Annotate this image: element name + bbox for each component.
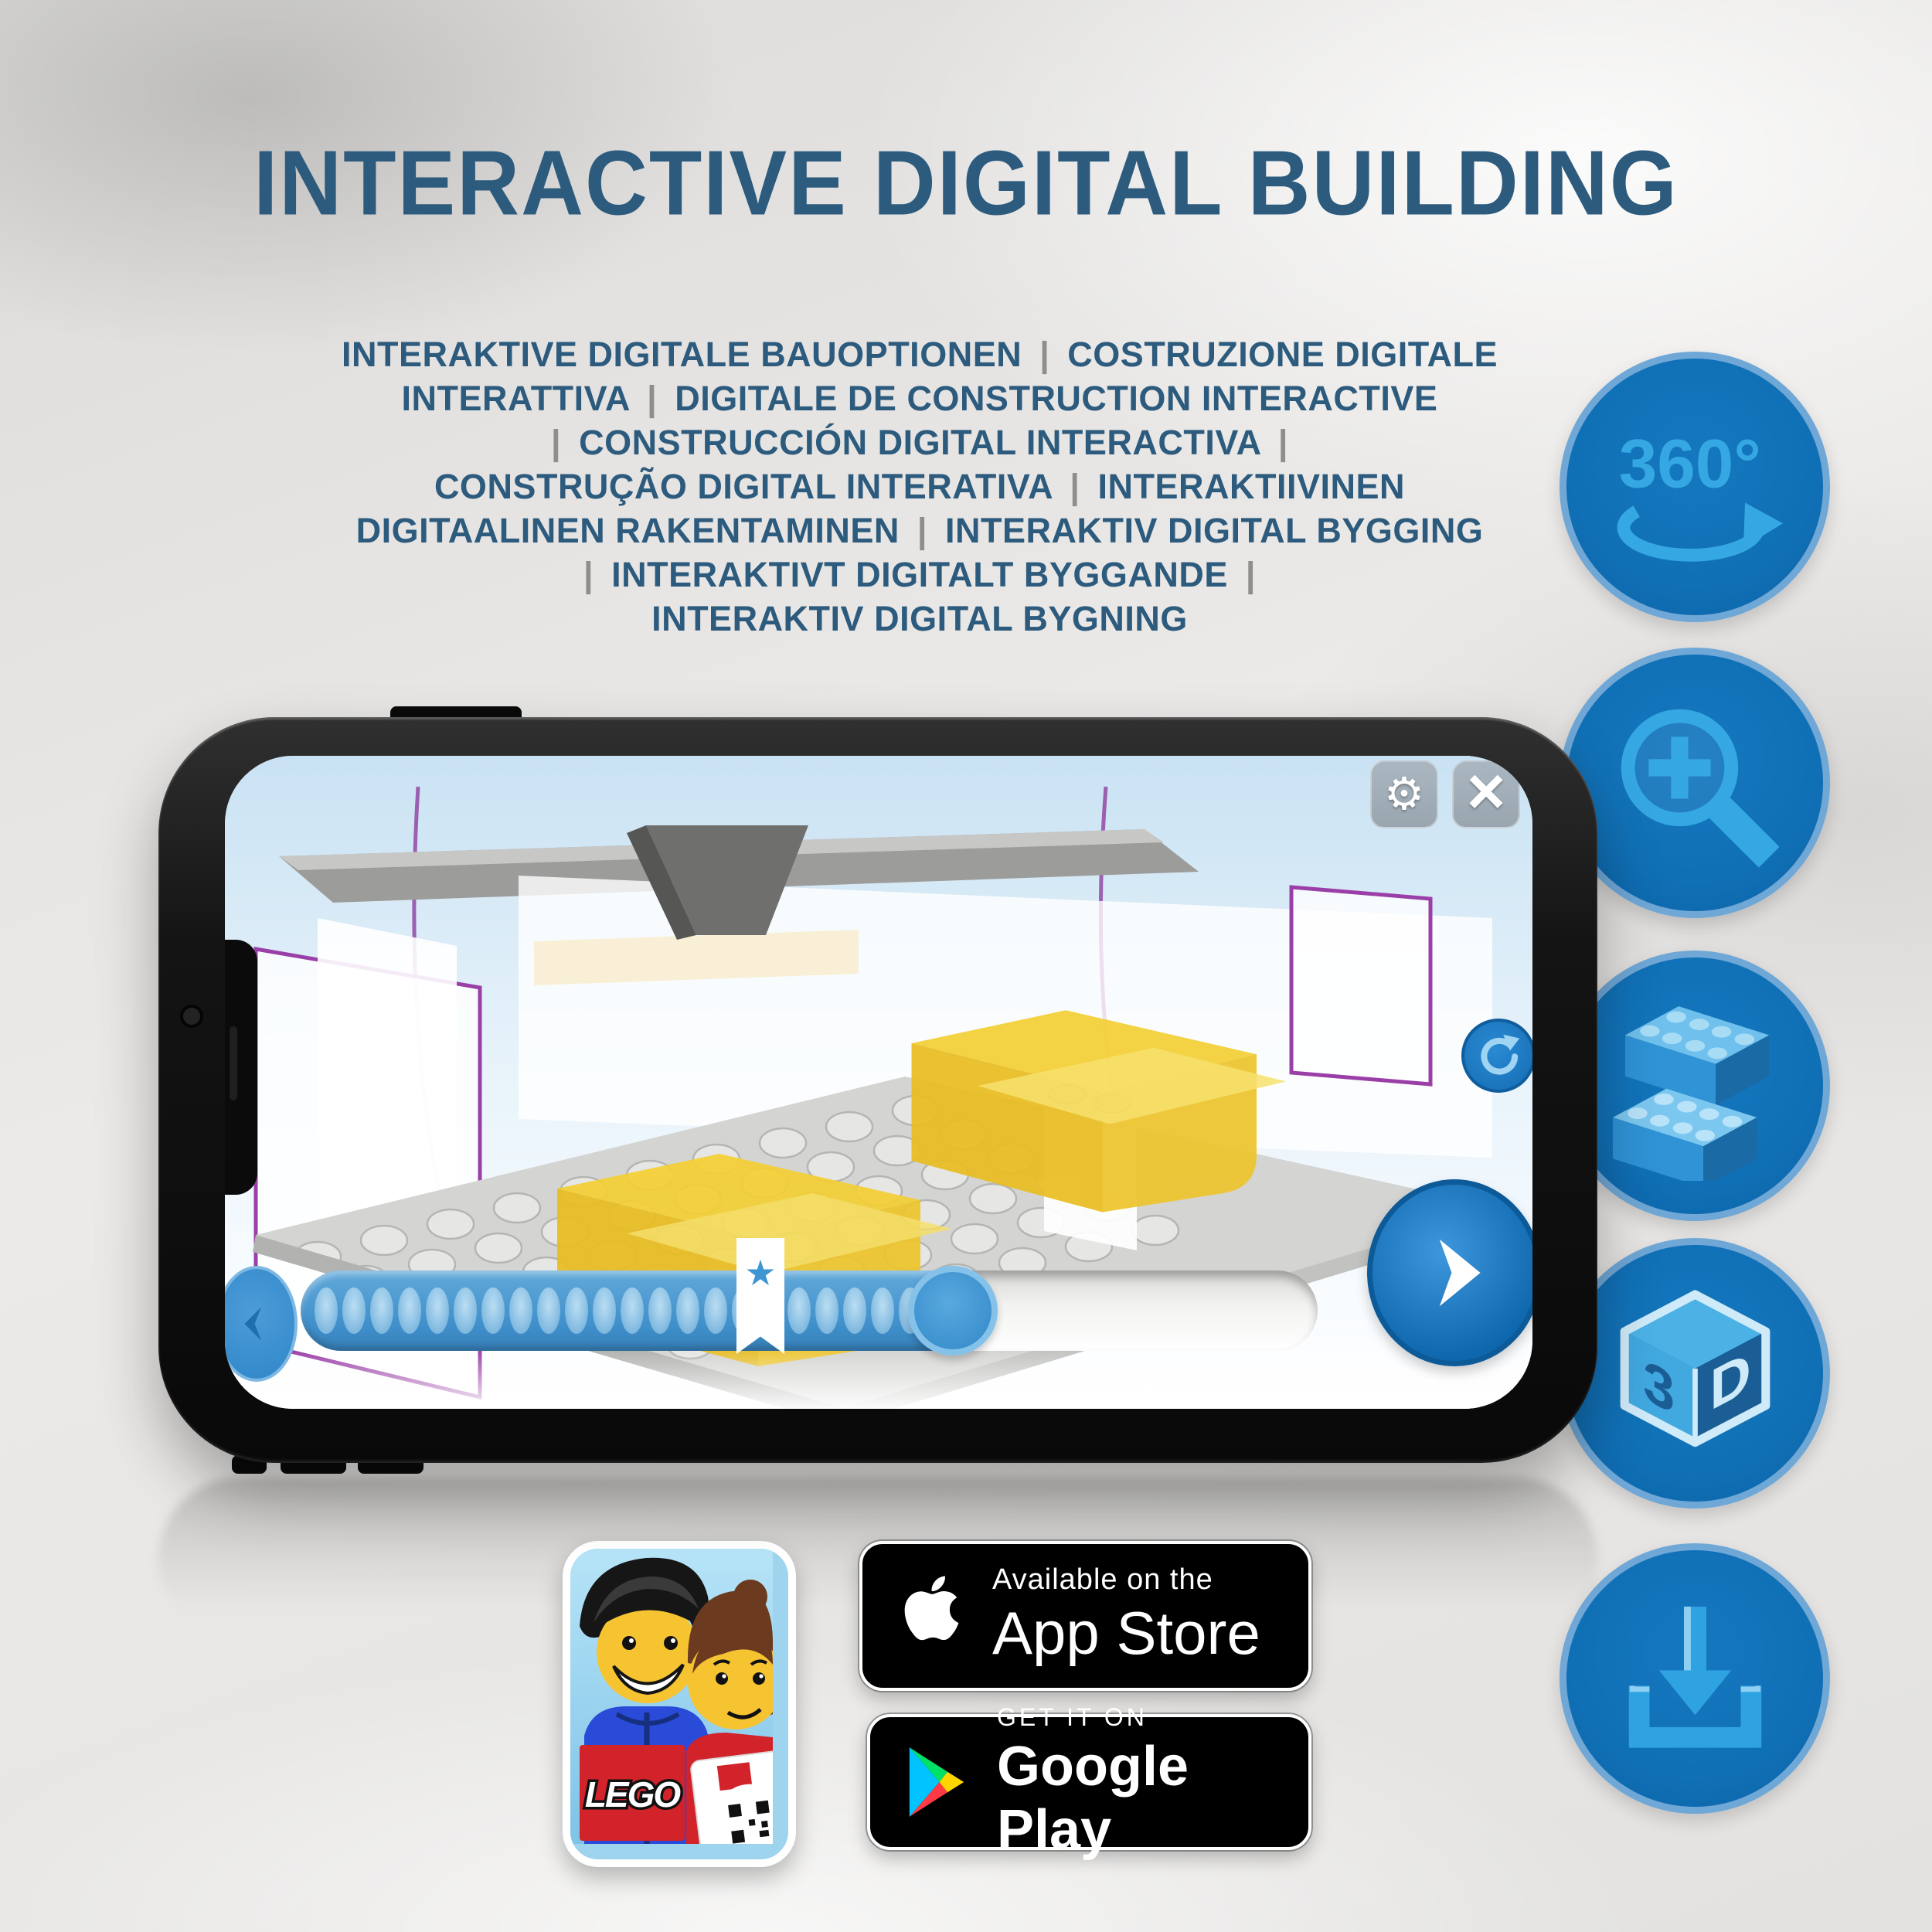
subtitle-line: INTERAKTIVE DIGITALE BAUOPTIONEN | COSTR… xyxy=(224,332,1615,376)
progress-dot xyxy=(593,1287,616,1334)
progress-dot xyxy=(704,1287,727,1334)
progress-dot xyxy=(481,1287,505,1334)
subtitle-line: DIGITAALINEN RAKENTAMINEN | INTERAKTIV D… xyxy=(224,509,1615,553)
settings-button[interactable]: ⚙ xyxy=(1370,760,1438,828)
google-play-tagline: GET IT ON xyxy=(997,1703,1308,1732)
progress-dot xyxy=(342,1287,366,1334)
progress-dot xyxy=(871,1287,894,1334)
progress-dot xyxy=(370,1287,393,1334)
next-step-button[interactable] xyxy=(1367,1179,1532,1366)
front-camera xyxy=(180,1005,203,1028)
subtitle-block: INTERAKTIVE DIGITALE BAUOPTIONEN | COSTR… xyxy=(224,332,1615,641)
phone-mockup: ⚙ × xyxy=(158,717,1597,1463)
feature-download xyxy=(1560,1543,1830,1814)
feature-3d: 3 D xyxy=(1560,1238,1830,1509)
google-play-icon xyxy=(903,1743,971,1821)
baseplate-stud xyxy=(760,1128,806,1158)
progress-dot xyxy=(315,1287,338,1334)
subtitle-line: INTERAKTIV DIGITAL BYGNING xyxy=(224,597,1615,641)
google-play-badge[interactable]: GET IT ON Google Play xyxy=(867,1714,1311,1850)
progress-dot xyxy=(621,1287,644,1334)
progress-dot xyxy=(426,1287,449,1334)
poster-canvas: INTERACTIVE DIGITAL BUILDING INTERAKTIVE… xyxy=(0,0,1932,1932)
progress-dot xyxy=(648,1287,672,1334)
gear-icon: ⚙ xyxy=(1384,772,1424,817)
progress-dot xyxy=(509,1287,532,1334)
rotate-view-button[interactable] xyxy=(1461,1019,1532,1093)
phone-notch xyxy=(225,940,257,1195)
progress-dot xyxy=(843,1287,866,1334)
chevron-left-icon xyxy=(233,1301,280,1347)
baseplate-stud xyxy=(427,1209,474,1239)
baseplate-stud xyxy=(826,1112,872,1141)
close-button[interactable]: × xyxy=(1452,760,1520,828)
progress-dot xyxy=(815,1287,838,1334)
subtitle-line: | INTERAKTIVT DIGITALT BYGGANDE | xyxy=(224,553,1615,597)
feature-zoom xyxy=(1560,648,1830,918)
app-store-tagline: Available on the xyxy=(992,1563,1260,1597)
chevron-right-icon xyxy=(1408,1226,1501,1319)
rotate-icon xyxy=(1475,1032,1522,1080)
app-store-badge[interactable]: Available on the App Store xyxy=(859,1541,1311,1691)
baseplate-stud xyxy=(361,1226,407,1255)
app-store-label: App Store xyxy=(992,1598,1260,1668)
3d-cube-icon: 3 D xyxy=(1600,1279,1790,1468)
baseplate-stud xyxy=(951,1224,998,1253)
lego-bricks-icon xyxy=(1600,992,1790,1181)
subtitle-line: | CONSTRUCCIÓN DIGITAL INTERACTIVA | xyxy=(224,420,1615,464)
baseplate-stud xyxy=(970,1184,1016,1213)
notch-speaker-slit xyxy=(230,1026,237,1100)
progress-dot xyxy=(454,1287,477,1334)
360-rotation-icon: 360° xyxy=(1600,393,1790,582)
progress-dot xyxy=(398,1287,421,1334)
close-icon: × xyxy=(1467,758,1505,825)
feature-bricks xyxy=(1560,951,1830,1221)
milestone-flag: ★ xyxy=(736,1238,784,1354)
subtitle-line: CONSTRUÇÃO DIGITAL INTERATIVA | INTERAKT… xyxy=(224,464,1615,509)
progress-dot xyxy=(537,1287,560,1334)
download-icon xyxy=(1600,1584,1790,1774)
progress-dot xyxy=(565,1287,588,1334)
zoom-in-icon xyxy=(1600,689,1790,878)
360-label: 360° xyxy=(1618,424,1760,502)
star-icon: ★ xyxy=(744,1255,776,1291)
lego-app-icon[interactable]: LEGO xyxy=(563,1541,796,1867)
lego-logo: LEGO xyxy=(585,1774,682,1815)
subtitle-line: INTERATTIVA | DIGITALE DE CONSTRUCTION I… xyxy=(224,376,1615,420)
feature-360-rotation: 360° xyxy=(1560,352,1830,622)
progress-dot xyxy=(787,1287,811,1334)
progress-dot xyxy=(676,1287,699,1334)
baseplate-stud xyxy=(1132,1216,1179,1245)
progress-slider-handle[interactable] xyxy=(908,1266,998,1355)
page-title: INTERACTIVE DIGITAL BUILDING xyxy=(0,130,1932,236)
lego-app-icon-art: LEGO xyxy=(570,1549,773,1844)
app-screen: ⚙ × xyxy=(225,756,1532,1409)
google-play-label: Google Play xyxy=(997,1735,1308,1862)
apple-icon xyxy=(895,1574,966,1658)
baseplate-stud xyxy=(494,1193,540,1223)
baseplate-stud xyxy=(475,1233,522,1263)
